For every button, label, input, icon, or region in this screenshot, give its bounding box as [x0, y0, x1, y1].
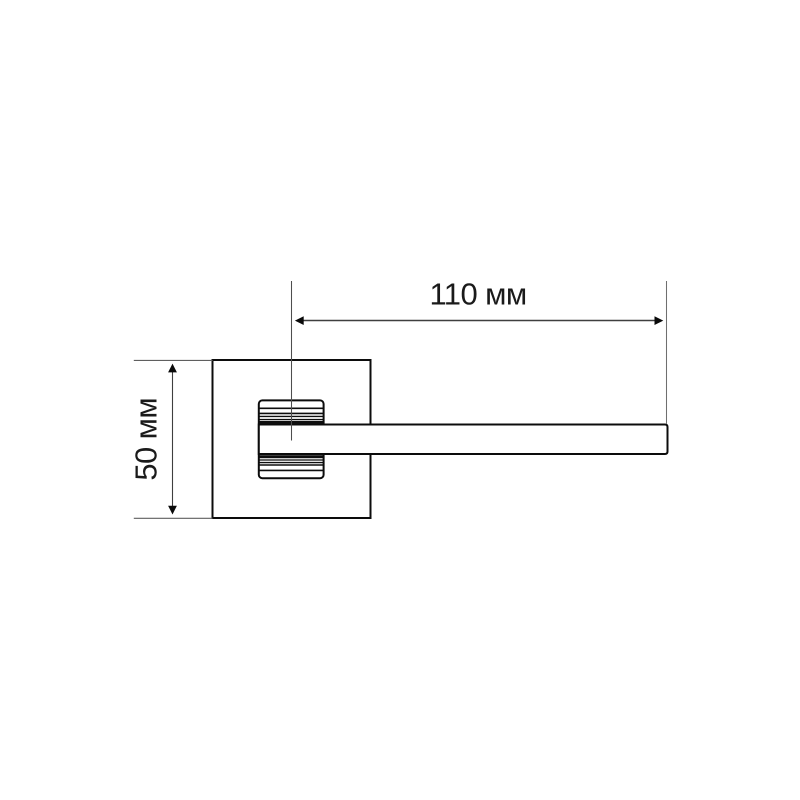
- svg-text:50 мм: 50 мм: [129, 398, 164, 481]
- svg-text:110 мм: 110 мм: [429, 277, 526, 312]
